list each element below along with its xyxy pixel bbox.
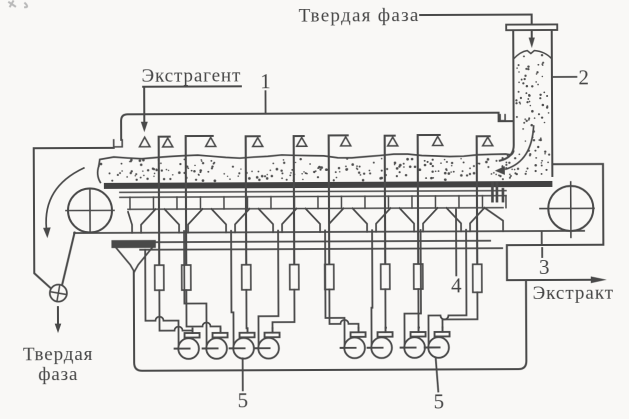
svg-text:2: 2: [578, 65, 589, 89]
svg-text:1: 1: [260, 69, 271, 93]
svg-text:Экстракт: Экстракт: [533, 283, 615, 304]
svg-text:Твердая: Твердая: [23, 344, 93, 365]
svg-text:5: 5: [434, 389, 445, 413]
svg-text:4: 4: [451, 273, 462, 297]
svg-text:Твердая фаза: Твердая фаза: [299, 5, 420, 27]
svg-text:3: 3: [539, 255, 550, 279]
svg-text:Экстрагент: Экстрагент: [142, 65, 242, 86]
svg-text:5: 5: [238, 388, 249, 412]
svg-text:фаза: фаза: [38, 364, 78, 385]
